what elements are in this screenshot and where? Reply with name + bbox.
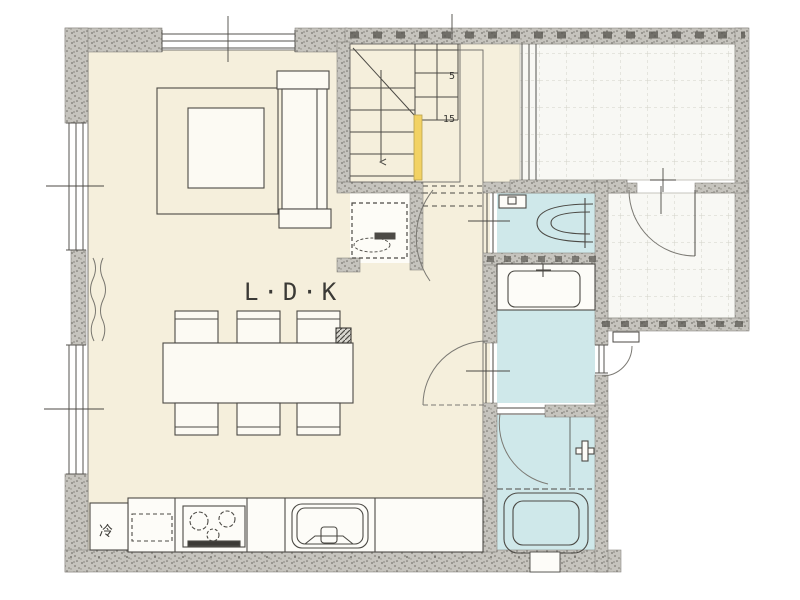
floor-plan-page: 5 15 [0, 0, 800, 600]
stove-grill [188, 541, 240, 546]
window-left-upper [66, 123, 86, 250]
washroom [497, 264, 595, 310]
kitchen [90, 498, 483, 552]
stair-count-lower-label: 15 [443, 114, 455, 125]
wall-genkan-bottom [597, 318, 749, 331]
floors [88, 44, 738, 552]
wall-storage-stub [337, 258, 360, 272]
window-left-lower [66, 345, 86, 474]
low-table [188, 108, 264, 188]
wall-left-upper [65, 28, 88, 123]
sofa [277, 71, 331, 228]
wall-wet-right [595, 182, 608, 318]
stair-count-upper-label: 5 [449, 71, 455, 82]
bath-drain-box [530, 552, 560, 572]
service-door-frame [595, 345, 608, 373]
dining-chairs-top [175, 311, 340, 343]
wall-terrace-south [510, 180, 627, 193]
refrigerator-label: 冷 [99, 524, 113, 540]
dining-table [163, 343, 353, 403]
wall-hall-top [337, 182, 423, 193]
stair-hall-floor [348, 44, 520, 192]
terrace-tile-floor [520, 44, 735, 180]
wall-frontdoor-right [695, 183, 748, 193]
stair-handrail [414, 115, 422, 180]
wall-wing-right-b [595, 375, 608, 572]
column-hatched [336, 328, 351, 343]
dining-chairs-bottom [175, 403, 340, 435]
floor-plan-drawing: 5 15 [0, 0, 800, 600]
service-step [613, 332, 639, 342]
wall-frontdoor-jamb [627, 183, 637, 193]
wall-stair-left [337, 42, 350, 192]
wall-washroom-bathroom [545, 405, 608, 417]
storage-equipment-box [375, 233, 395, 239]
window-top [162, 30, 295, 52]
wall-top-thin [345, 28, 748, 44]
dining-area [163, 311, 353, 435]
sink-faucet [321, 527, 337, 543]
genkan-tile-floor [608, 193, 738, 318]
wall-right-outer [735, 28, 749, 330]
wall-ldk-washroom [483, 265, 497, 343]
ldk-room-label: L·D·K [244, 278, 341, 306]
wall-bathroom-left [483, 403, 497, 552]
wall-left-mid [71, 250, 86, 345]
